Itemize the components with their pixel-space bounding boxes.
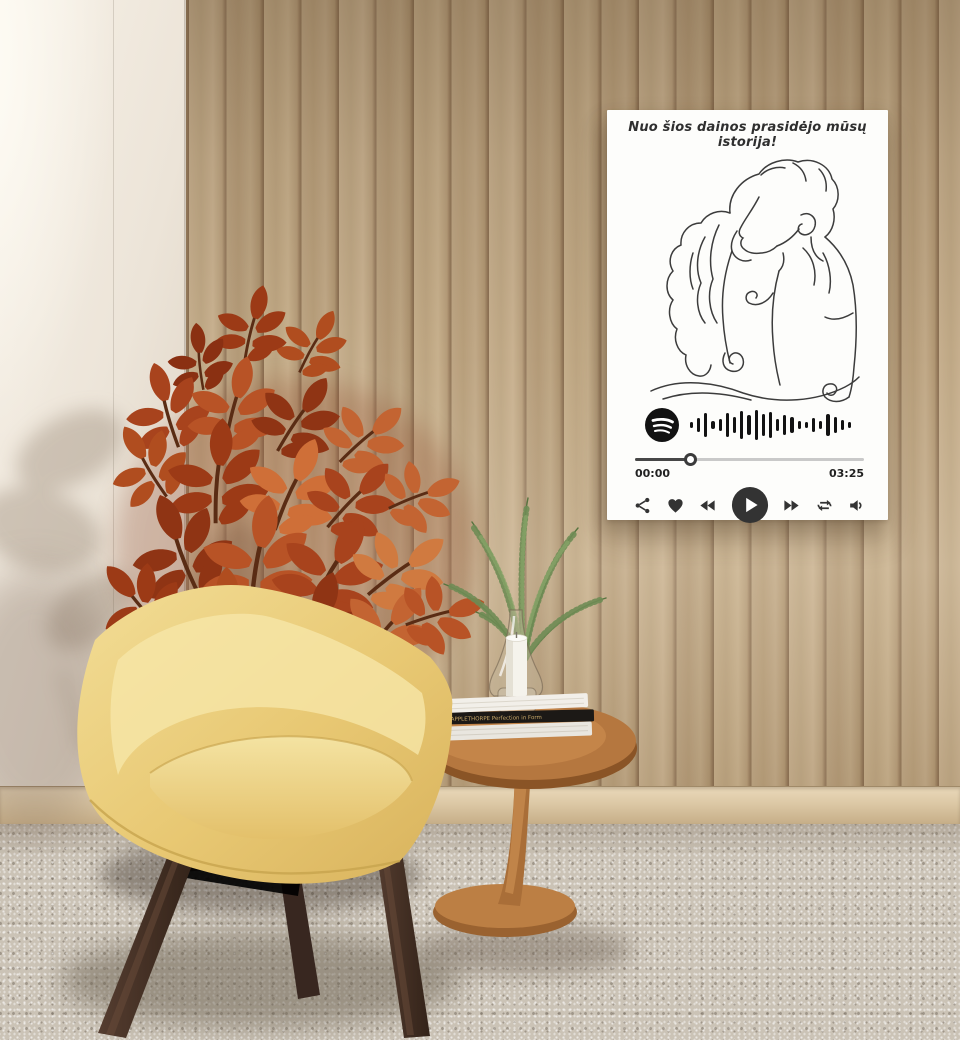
- progress-knob: [684, 453, 697, 466]
- previous-icon: [698, 496, 717, 515]
- code-bar: [690, 422, 693, 428]
- yellow-armchair: [30, 565, 480, 1040]
- spotify-code-bars: [690, 407, 851, 443]
- code-bar: [762, 414, 765, 436]
- code-bar: [798, 421, 801, 429]
- poster-title: Nuo šios dainos prasidėjo mūsų istorija!: [607, 120, 888, 150]
- code-bar: [805, 422, 808, 428]
- code-bar: [711, 421, 714, 429]
- volume-icon: [847, 496, 866, 515]
- code-bar: [783, 415, 786, 435]
- code-bar: [740, 411, 743, 439]
- player-controls: [633, 486, 866, 524]
- code-bar: [841, 420, 844, 430]
- next-icon: [782, 496, 801, 515]
- progress-bar: [635, 454, 864, 466]
- code-bar: [747, 415, 750, 435]
- code-bar: [704, 413, 707, 437]
- code-bar: [812, 418, 815, 432]
- line-art-couple: [633, 152, 863, 404]
- code-bar: [848, 422, 851, 428]
- spotify-logo-icon: [644, 407, 680, 443]
- code-bar: [769, 412, 772, 438]
- code-bar: [819, 421, 822, 429]
- elapsed-time: 00:00: [635, 467, 670, 480]
- code-bar: [834, 417, 837, 433]
- code-bar: [776, 419, 779, 431]
- spotify-code-row: [607, 404, 888, 446]
- heart-icon: [666, 496, 685, 515]
- code-bar: [697, 418, 700, 432]
- code-bar: [733, 417, 736, 433]
- code-bar: [755, 410, 758, 440]
- room-scene: Nuo šios dainos prasidėjo mūsų istorija!: [0, 0, 960, 1040]
- duration-time: 03:25: [829, 467, 864, 480]
- play-icon: [731, 486, 769, 524]
- time-row: 00:00 03:25: [635, 467, 864, 480]
- song-poster: Nuo šios dainos prasidėjo mūsų istorija!: [607, 110, 888, 520]
- repeat-icon: [815, 496, 834, 515]
- code-bar: [726, 413, 729, 437]
- code-bar: [790, 417, 793, 433]
- code-bar: [826, 414, 829, 436]
- code-bar: [719, 419, 722, 431]
- progress-played: [635, 458, 690, 461]
